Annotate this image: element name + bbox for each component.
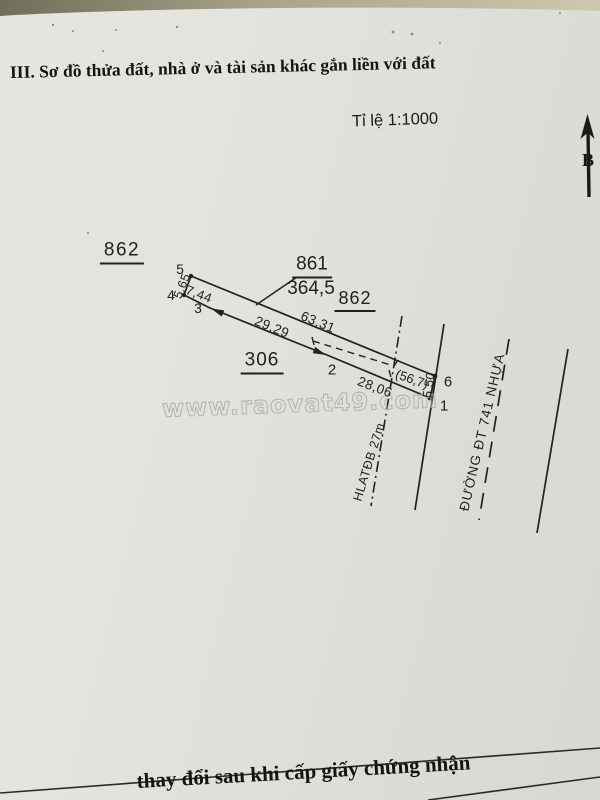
road-near-edge-line bbox=[415, 324, 444, 510]
point-3-label: 3 bbox=[194, 300, 202, 316]
scale-label: Tỉ lệ 1:1000 bbox=[352, 110, 439, 132]
point-1-label: 1 bbox=[440, 398, 448, 415]
north-label: B bbox=[582, 150, 594, 171]
point-2-label: 2 bbox=[328, 362, 336, 379]
road-far-edge-line bbox=[537, 349, 568, 533]
point-6-label: 6 bbox=[444, 374, 452, 391]
point-5-label: 5 bbox=[176, 261, 184, 277]
footer-border-line-2 bbox=[428, 777, 600, 800]
neighbor-parcel-bottom: 306 bbox=[241, 350, 284, 375]
point-4-label: 4 bbox=[167, 287, 175, 303]
scanned-land-certificate-page: www.raovat49.com III. Sơ đồ thửa đất, nh… bbox=[0, 0, 600, 800]
parcel-number: 861 bbox=[292, 254, 332, 279]
cadastral-diagram-canvas: www.raovat49.com bbox=[0, 0, 600, 800]
dimension-arrow-point2 bbox=[313, 347, 328, 358]
paper-top-edge bbox=[0, 0, 600, 16]
neighbor-parcel-left: 862 bbox=[100, 240, 144, 265]
neighbor-parcel-right: 862 bbox=[334, 288, 375, 312]
dimension-arrow-point3 bbox=[210, 305, 225, 316]
parcel-area: 364,5 bbox=[287, 278, 335, 300]
watermark-text: www.raovat49.com bbox=[161, 385, 438, 423]
scan-dust-specks bbox=[52, 12, 561, 234]
